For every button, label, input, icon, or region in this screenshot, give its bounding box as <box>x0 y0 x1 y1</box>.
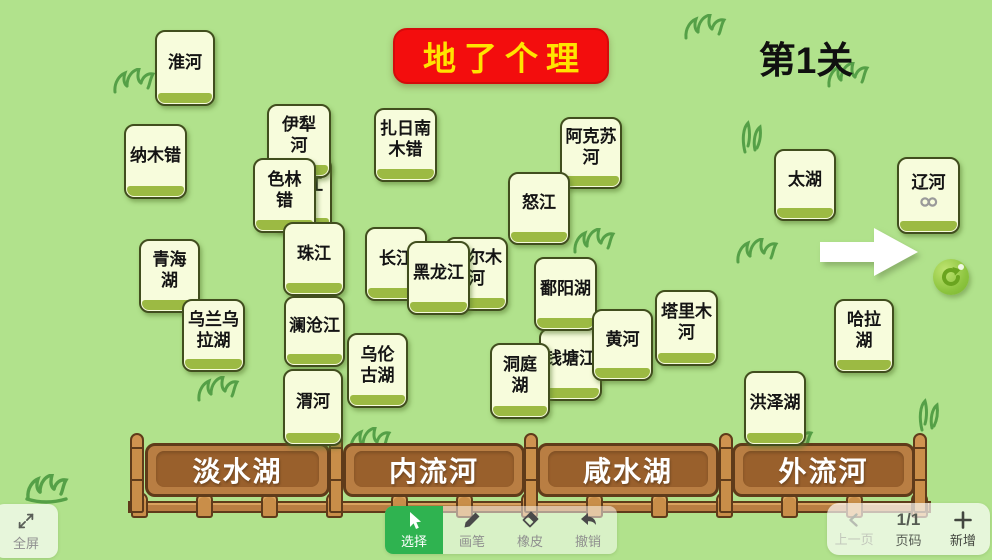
select-tool-button[interactable]: 选择 <box>385 506 443 554</box>
grass-icon <box>735 238 781 274</box>
card-label: 纳木错 <box>130 146 181 167</box>
card-halahu[interactable]: 哈拉湖 <box>834 299 894 373</box>
card-lancangjiang[interactable]: 澜沧江 <box>284 296 345 367</box>
card-hongzehu[interactable]: 洪泽湖 <box>744 371 806 446</box>
pen-tool-button[interactable]: 画笔 <box>443 506 501 554</box>
eraser-tool-button[interactable]: 橡皮 <box>501 506 559 554</box>
card-label: 怒江 <box>522 193 556 214</box>
title-text: 地了个理 <box>415 32 587 80</box>
eraser-icon <box>520 510 540 530</box>
bin-inland-river[interactable]: 内流河 <box>343 443 525 497</box>
card-zhujiang[interactable]: 珠江 <box>283 222 345 296</box>
card-wulanwulahu[interactable]: 乌兰乌拉湖 <box>182 299 245 372</box>
grass-icon <box>917 398 963 434</box>
card-namucuo[interactable]: 纳木错 <box>124 124 187 199</box>
card-label: 青海湖 <box>153 250 187 291</box>
card-label: 色林错 <box>268 170 302 211</box>
fence-post <box>913 433 927 513</box>
card-weihe[interactable]: 渭河 <box>283 369 343 446</box>
page-number-indicator: 1/1 页码 <box>881 503 935 555</box>
card-zharinanmucuo[interactable]: 扎日南木错 <box>374 108 437 182</box>
card-label: 太湖 <box>788 170 822 191</box>
card-label: 鄱阳湖 <box>540 279 591 300</box>
prev-page-button[interactable]: 上一页 <box>827 503 881 555</box>
link-icon <box>919 196 939 208</box>
bin-label: 内流河 <box>389 450 479 490</box>
chevron-left-icon <box>845 511 863 529</box>
card-huaihe[interactable]: 淮河 <box>155 30 215 106</box>
undo-icon <box>578 510 598 530</box>
card-label: 哈拉湖 <box>847 310 881 351</box>
undo-tool-button[interactable]: 撤销 <box>559 506 617 554</box>
select-tool-label: 选择 <box>401 531 427 550</box>
plus-icon <box>953 510 973 530</box>
card-label: 渭河 <box>296 392 330 413</box>
title-banner: 地了个理 <box>393 28 609 84</box>
bin-label: 外流河 <box>778 450 868 490</box>
tools-toolbar: 选择 画笔 橡皮 撤销 <box>385 506 617 554</box>
cursor-icon <box>404 510 424 530</box>
game-stage: 地了个理 第1关 淡水湖内流河咸水湖外流河 淮河纳木错江伊犁河色林错扎日南木错阿… <box>0 0 992 560</box>
bin-salt-lake[interactable]: 咸水湖 <box>537 443 719 497</box>
card-label: 辽河 <box>912 173 946 194</box>
eraser-tool-label: 橡皮 <box>517 531 543 550</box>
card-huanghe[interactable]: 黄河 <box>592 309 653 381</box>
prev-page-label: 上一页 <box>835 529 874 548</box>
fullscreen-icon <box>16 511 36 531</box>
card-talimuhe[interactable]: 塔里木河 <box>655 290 718 366</box>
next-arrow-icon[interactable] <box>818 224 922 280</box>
add-page-button[interactable]: 新增 <box>936 503 990 555</box>
card-label: 伊犁河 <box>282 115 316 156</box>
card-label: 黑龙江 <box>413 263 464 284</box>
fullscreen-button[interactable]: 全屏 <box>0 504 58 558</box>
card-liaohe[interactable]: 辽河 <box>897 157 960 234</box>
fence-post <box>524 433 538 513</box>
bin-label: 咸水湖 <box>583 450 673 490</box>
card-label: 乌伦古湖 <box>361 345 395 386</box>
card-label: 扎日南木错 <box>380 119 431 160</box>
card-label: 澜沧江 <box>289 316 340 337</box>
bin-label: 淡水湖 <box>192 450 282 490</box>
page-number-label: 页码 <box>895 530 921 549</box>
card-label: 钱塘江 <box>545 349 596 370</box>
refresh-highlight <box>958 264 964 270</box>
level-indicator: 第1关 <box>746 30 866 84</box>
grass-icon <box>112 68 158 104</box>
card-label: 阿克苏河 <box>566 127 617 168</box>
card-dongtinghu[interactable]: 洞庭湖 <box>490 343 550 419</box>
card-taihu[interactable]: 太湖 <box>774 149 836 221</box>
fullscreen-label: 全屏 <box>13 533 39 552</box>
card-label: 塔里木河 <box>661 302 712 343</box>
undo-tool-label: 撤销 <box>575 531 601 550</box>
bin-freshwater-lake[interactable]: 淡水湖 <box>145 443 330 497</box>
card-heilongjiang[interactable]: 黑龙江 <box>407 241 470 315</box>
card-label: 淮河 <box>168 53 202 74</box>
card-nujiang[interactable]: 怒江 <box>508 172 570 245</box>
fence-post <box>130 433 144 513</box>
fence-post <box>719 433 733 513</box>
card-label: 乌兰乌拉湖 <box>188 310 239 351</box>
add-page-label: 新增 <box>950 530 976 549</box>
refresh-button[interactable] <box>933 259 969 295</box>
page-number-value: 1/1 <box>897 510 921 530</box>
card-label: 黄河 <box>606 330 640 351</box>
card-label: 洪泽湖 <box>750 393 801 414</box>
grass-icon <box>683 14 729 50</box>
pen-tool-label: 画笔 <box>459 531 485 550</box>
card-poyanghu[interactable]: 鄱阳湖 <box>534 257 597 331</box>
bin-outflow-river[interactable]: 外流河 <box>732 443 915 497</box>
grass-icon <box>196 376 242 412</box>
card-wulunguhu[interactable]: 乌伦古湖 <box>347 333 408 408</box>
pager-panel: 上一页 1/1 页码 新增 <box>827 503 990 555</box>
pen-icon <box>462 510 482 530</box>
card-label: 洞庭湖 <box>503 355 537 396</box>
card-label: 珠江 <box>297 244 331 265</box>
